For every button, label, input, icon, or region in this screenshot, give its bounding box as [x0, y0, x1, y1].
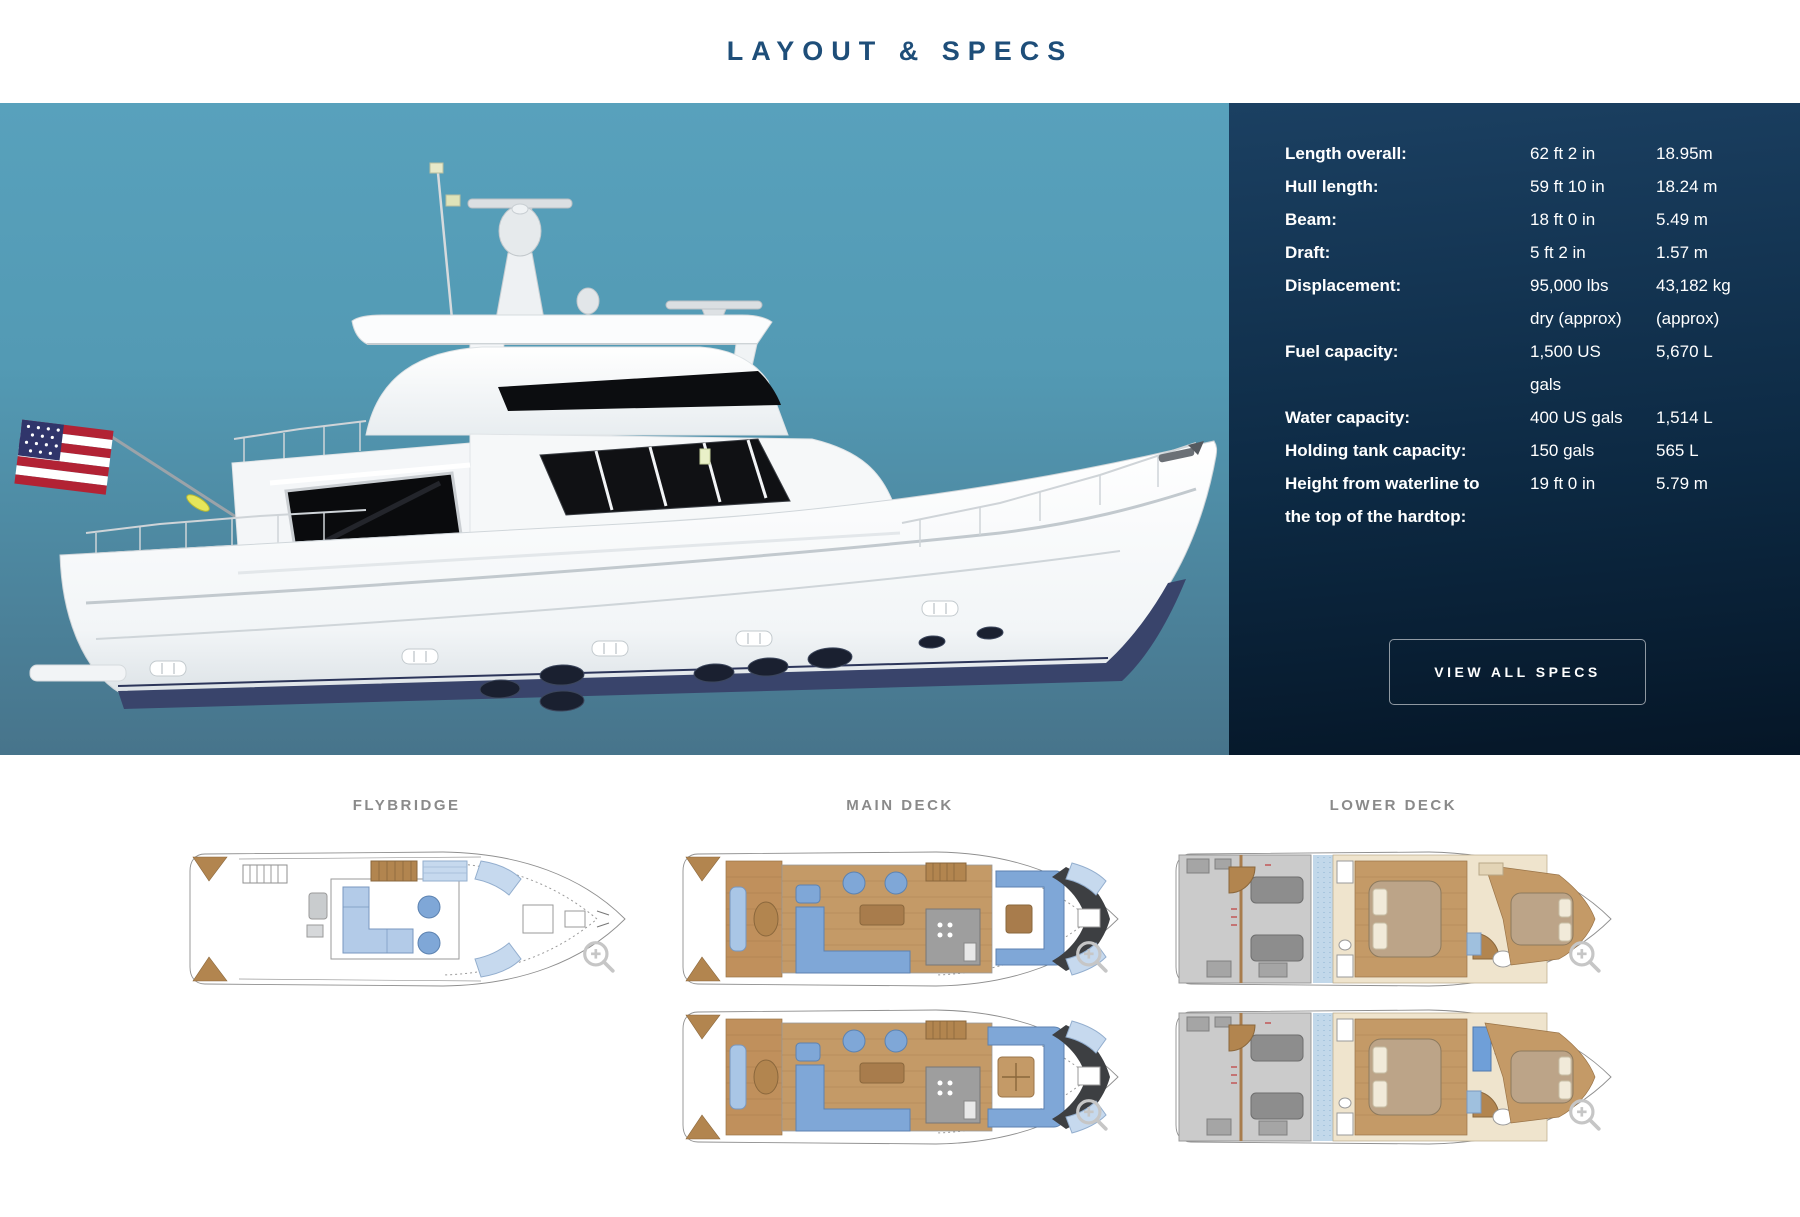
spec-label: Water capacity: — [1285, 401, 1530, 434]
spec-label: Draft: — [1285, 236, 1530, 269]
spec-imperial: 62 ft 2 in — [1530, 137, 1656, 170]
spec-row: Holding tank capacity: 150 gals 565 L — [1285, 434, 1750, 467]
spec-label: Length overall: — [1285, 137, 1530, 170]
spec-row: Length overall: 62 ft 2 in 18.95m — [1285, 137, 1750, 170]
deck-plans-section: FLYBRIDGE MAIN DECK LOWER DECK — [0, 755, 1800, 1147]
magnifier-icon[interactable] — [581, 939, 617, 975]
spec-label: Fuel capacity: — [1285, 335, 1530, 401]
yacht-illustration-svg — [0, 103, 1229, 755]
spec-row: Fuel capacity: 1,500 US gals 5,670 L — [1285, 335, 1750, 401]
spec-row: Beam: 18 ft 0 in 5.49 m — [1285, 203, 1750, 236]
spec-label: Displacement: — [1285, 269, 1530, 335]
spec-row: Water capacity: 400 US gals 1,514 L — [1285, 401, 1750, 434]
floorplan-lower-deck-alt[interactable] — [1167, 1007, 1619, 1147]
deck-label-main: MAIN DECK — [846, 797, 954, 815]
view-all-specs-button[interactable]: VIEW ALL SPECS — [1389, 639, 1645, 705]
spec-imperial: 19 ft 0 in — [1530, 467, 1656, 533]
deck-label-flybridge: FLYBRIDGE — [353, 797, 461, 815]
lower-deck-plan-drawing — [1167, 849, 1619, 989]
spec-metric: 5.79 m — [1656, 467, 1750, 533]
yacht-profile-illustration — [0, 103, 1229, 755]
spec-metric: 5.49 m — [1656, 203, 1750, 236]
us-flag-icon — [14, 420, 236, 517]
spec-metric: 5,670 L — [1656, 335, 1750, 401]
main-deck-plan-drawing — [674, 849, 1126, 989]
floorplan-main-deck-alt[interactable] — [674, 1007, 1126, 1147]
spec-imperial: 400 US gals — [1530, 401, 1656, 434]
flybridge-plan-drawing — [181, 849, 633, 989]
magnifier-icon[interactable] — [1074, 939, 1110, 975]
spec-label: Holding tank capacity: — [1285, 434, 1530, 467]
spec-imperial: 18 ft 0 in — [1530, 203, 1656, 236]
spec-metric: 565 L — [1656, 434, 1750, 467]
page-header: LAYOUT & SPECS — [0, 0, 1800, 103]
magnifier-icon[interactable] — [1567, 939, 1603, 975]
floorplan-flybridge[interactable] — [181, 849, 633, 989]
spec-row: Hull length: 59 ft 10 in 18.24 m — [1285, 170, 1750, 203]
spec-label: Height from waterline to the top of the … — [1285, 467, 1530, 533]
spec-imperial: 95,000 lbs dry (approx) — [1530, 269, 1656, 335]
spec-label: Beam: — [1285, 203, 1530, 236]
main-deck-alt-plan-drawing — [674, 1007, 1126, 1147]
spec-imperial: 1,500 US gals — [1530, 335, 1656, 401]
spec-row: Draft: 5 ft 2 in 1.57 m — [1285, 236, 1750, 269]
spec-metric: 1.57 m — [1656, 236, 1750, 269]
floorplan-main-deck[interactable] — [674, 849, 1126, 989]
deck-label-lower: LOWER DECK — [1330, 797, 1458, 815]
specs-panel: Length overall: 62 ft 2 in 18.95m Hull l… — [1229, 103, 1800, 755]
page-title: LAYOUT & SPECS — [727, 36, 1074, 67]
magnifier-icon[interactable] — [1567, 1097, 1603, 1133]
spec-label: Hull length: — [1285, 170, 1530, 203]
spec-metric: 18.95m — [1656, 137, 1750, 170]
floorplan-lower-deck[interactable] — [1167, 849, 1619, 989]
mast-and-antennas — [430, 163, 762, 321]
spec-row: Height from waterline to the top of the … — [1285, 467, 1750, 533]
spec-metric: 43,182 kg (approx) — [1656, 269, 1750, 335]
hero-section: Length overall: 62 ft 2 in 18.95m Hull l… — [0, 103, 1800, 755]
lower-deck-alt-plan-drawing — [1167, 1007, 1619, 1147]
spec-imperial: 5 ft 2 in — [1530, 236, 1656, 269]
magnifier-icon[interactable] — [1074, 1097, 1110, 1133]
spec-imperial: 150 gals — [1530, 434, 1656, 467]
spec-row: Displacement: 95,000 lbs dry (approx) 43… — [1285, 269, 1750, 335]
spec-metric: 1,514 L — [1656, 401, 1750, 434]
spec-metric: 18.24 m — [1656, 170, 1750, 203]
spec-imperial: 59 ft 10 in — [1530, 170, 1656, 203]
